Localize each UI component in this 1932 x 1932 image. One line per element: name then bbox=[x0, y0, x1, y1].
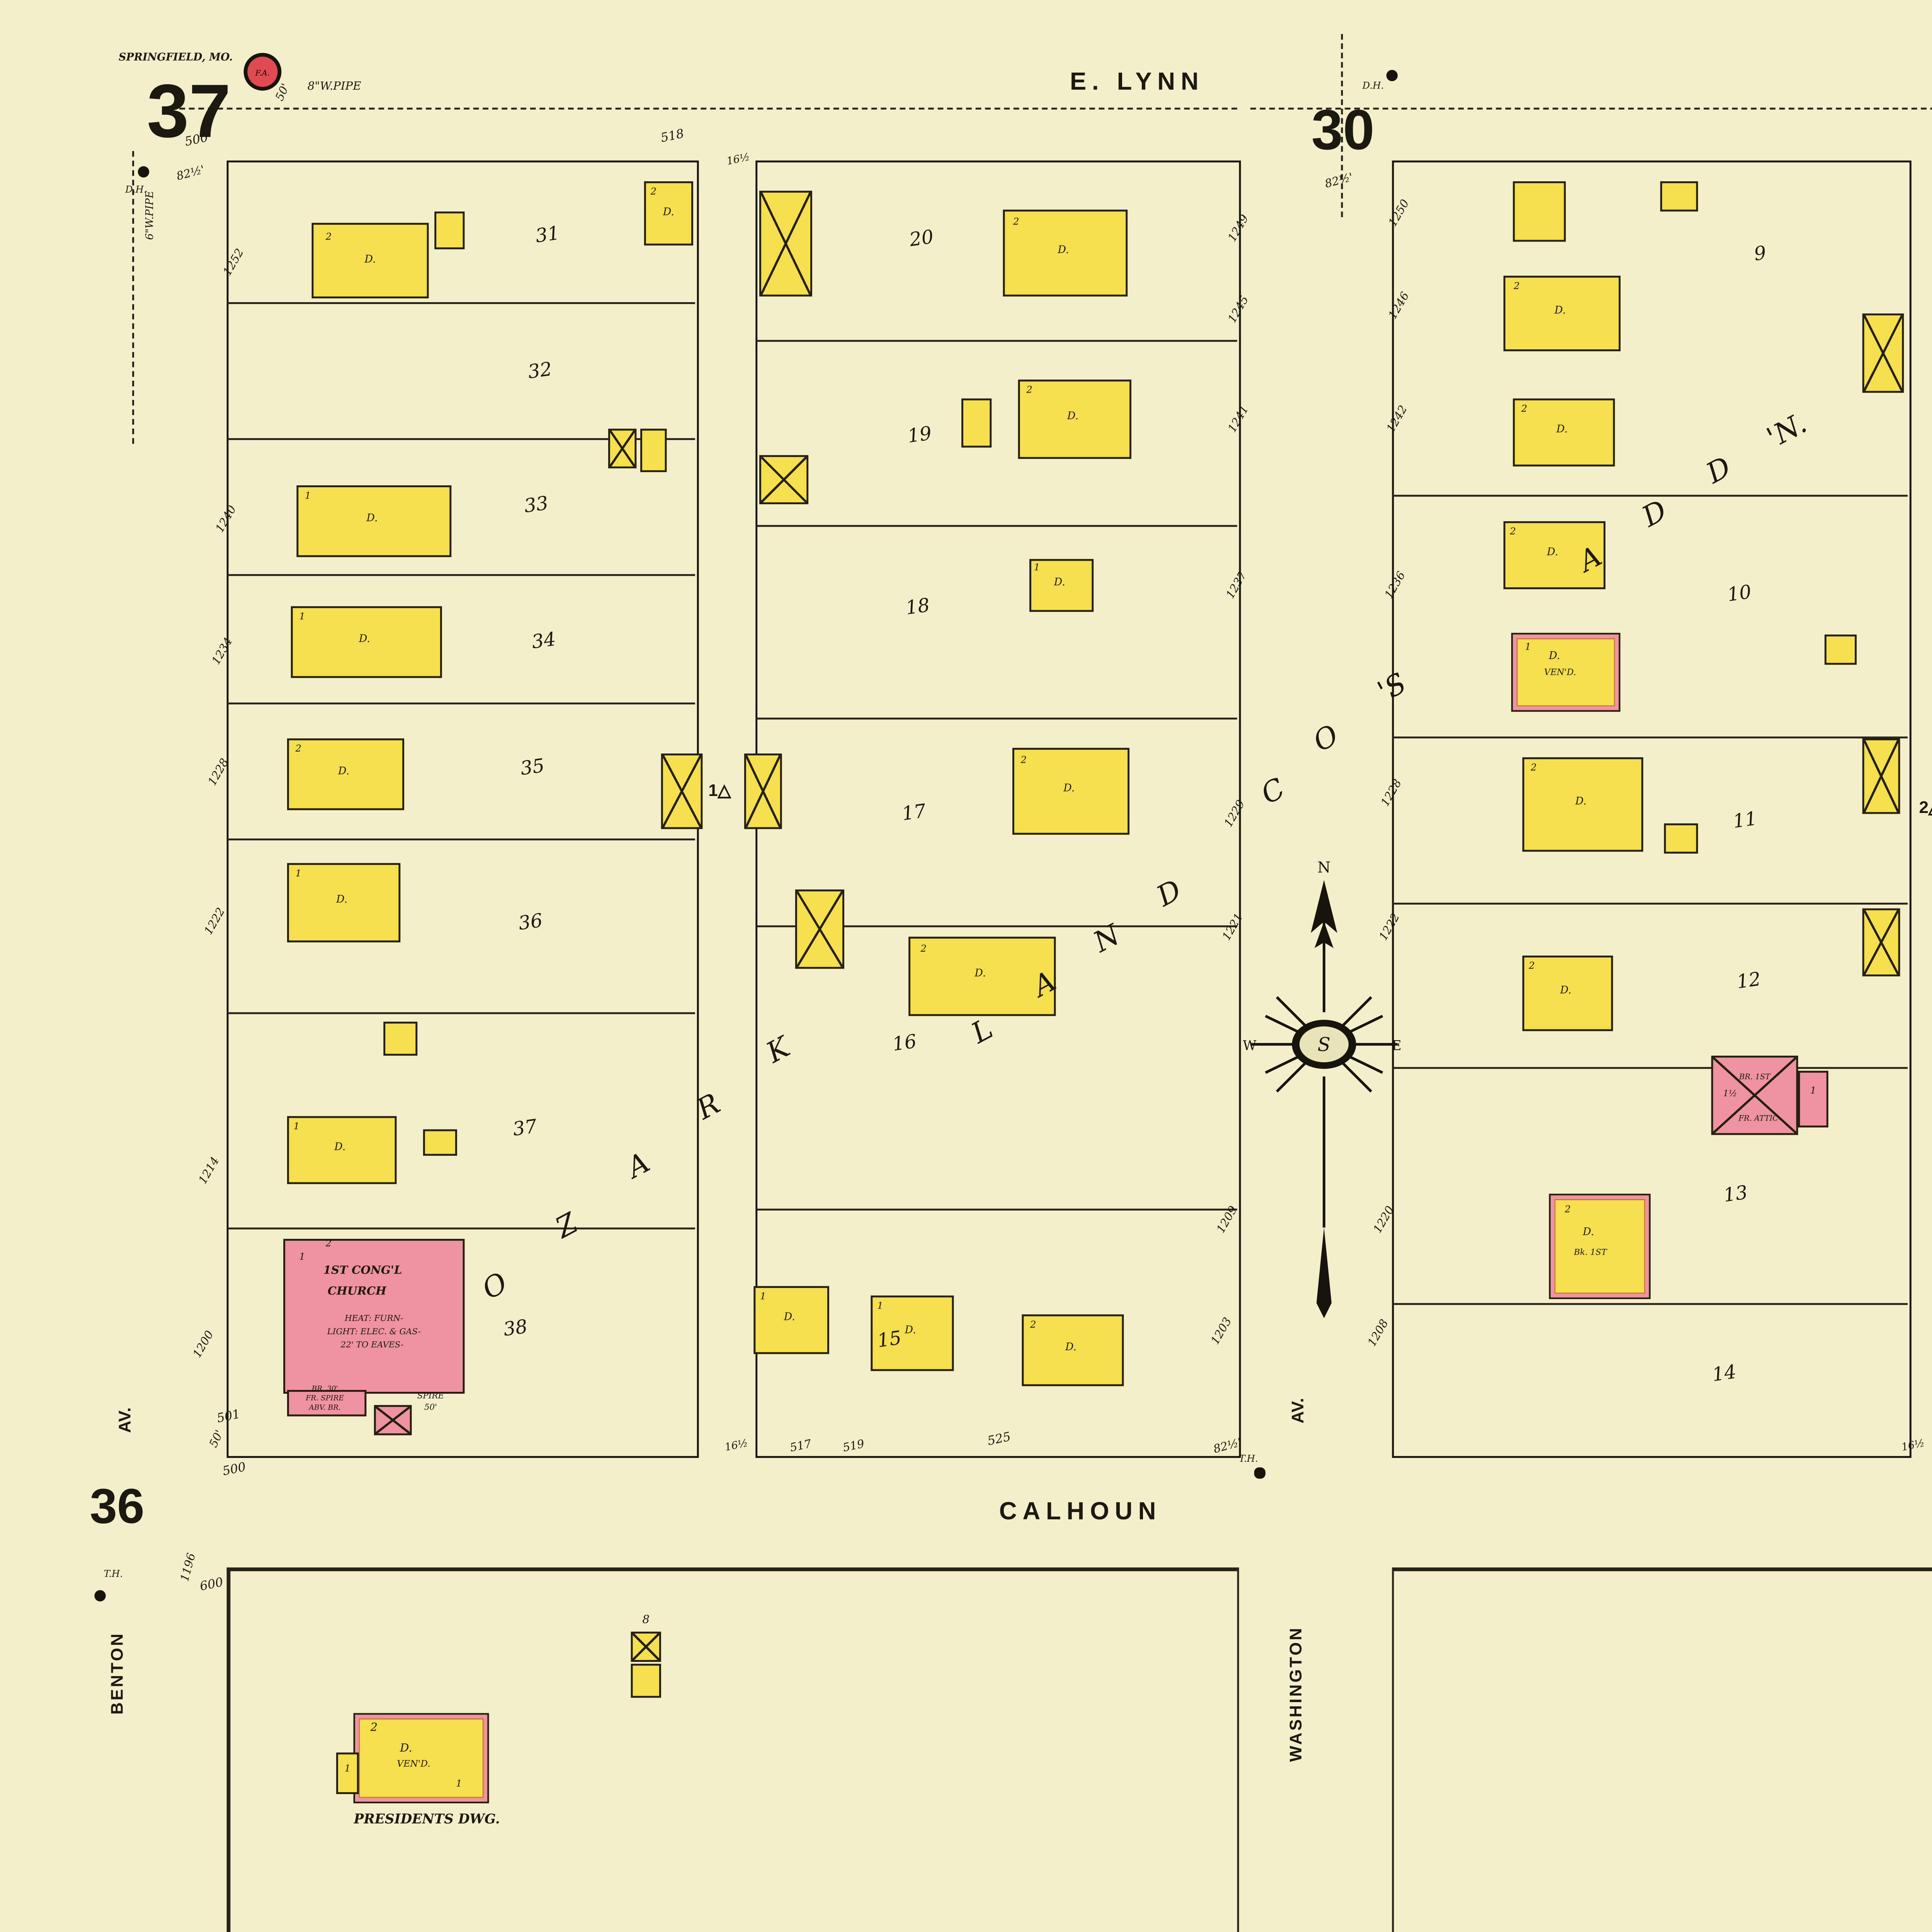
lot-line bbox=[1392, 1067, 1908, 1068]
lot-line bbox=[1237, 1568, 1240, 1932]
building-footprint bbox=[631, 1664, 661, 1698]
hn-1208: 1208 bbox=[1366, 1318, 1392, 1349]
width-50-left: 50' bbox=[207, 1428, 227, 1450]
church-spire: SPIRE bbox=[417, 1393, 444, 1402]
f-11: 1 bbox=[294, 1122, 300, 1133]
lot-18: 18 bbox=[905, 596, 931, 620]
f-25: 1 bbox=[877, 1301, 883, 1312]
th-left: T.H. bbox=[104, 1569, 123, 1580]
d-1: D. bbox=[364, 255, 376, 266]
lot-line bbox=[227, 1568, 230, 1932]
presidents-label: PRESIDENTS DWG. bbox=[354, 1810, 500, 1827]
building-footprint bbox=[1798, 1071, 1828, 1128]
street-washington: WASHINGTON bbox=[1286, 1626, 1305, 1762]
building-footprint bbox=[744, 753, 782, 829]
building-footprint bbox=[640, 429, 667, 472]
d-24: D. bbox=[784, 1313, 795, 1324]
pipe-elynn-west bbox=[179, 108, 1237, 110]
alley-16-top: 16½ bbox=[726, 153, 751, 168]
lot-35: 35 bbox=[519, 757, 546, 781]
church-name-1: 1ST CONG'L bbox=[323, 1264, 402, 1277]
th-dot-left bbox=[94, 1590, 106, 1602]
svg-text:W: W bbox=[1243, 1038, 1257, 1053]
d-23: D. bbox=[975, 969, 986, 980]
d-31: D. bbox=[1556, 425, 1568, 436]
church-heat-3: 22' TO EAVES- bbox=[341, 1342, 404, 1351]
hn-1214: 1214 bbox=[197, 1155, 223, 1187]
pres-1a: 1 bbox=[345, 1764, 351, 1775]
lot-14: 14 bbox=[1711, 1363, 1738, 1387]
compass-rose-icon: S N W E bbox=[1239, 850, 1409, 1322]
fire-alarm-box-icon: F.A. bbox=[244, 53, 282, 91]
d-35: D. bbox=[1575, 797, 1587, 808]
lot-line bbox=[755, 1209, 1237, 1210]
dh-top-left: D.H. bbox=[125, 185, 147, 196]
lot-32: 32 bbox=[527, 360, 553, 384]
church-heat-1: HEAT: FURN- bbox=[345, 1315, 403, 1325]
fire-alarm-label: F.A. bbox=[255, 67, 270, 77]
d-7: D. bbox=[359, 634, 370, 646]
marker-1a: 1△ bbox=[708, 781, 731, 802]
dh-dot-top-center bbox=[1386, 70, 1398, 82]
lot-20: 20 bbox=[908, 228, 935, 252]
d-11: D. bbox=[334, 1143, 345, 1154]
building-footprint bbox=[961, 398, 992, 447]
f-16: 2 bbox=[1026, 385, 1032, 396]
vend-label: VEN'D. bbox=[1544, 670, 1576, 679]
f-9: 1 bbox=[296, 869, 302, 880]
lot-12: 12 bbox=[1736, 970, 1762, 994]
d-6: D. bbox=[366, 514, 378, 525]
building-footprint bbox=[1513, 181, 1566, 241]
lot-31: 31 bbox=[534, 224, 561, 248]
f-8: 2 bbox=[296, 744, 302, 755]
building-footprint bbox=[1862, 908, 1900, 976]
width-82-top-left: 82½' bbox=[175, 164, 206, 184]
br1st-frattic: FR. ATTIC bbox=[1738, 1113, 1778, 1122]
pres-2: 2 bbox=[370, 1721, 378, 1735]
lot-17: 17 bbox=[901, 802, 927, 826]
br1st-label: BR. 1ST bbox=[1739, 1072, 1770, 1081]
lot-16: 16 bbox=[891, 1032, 918, 1056]
d-25: D. bbox=[905, 1326, 916, 1337]
svg-text:S: S bbox=[1318, 1034, 1330, 1056]
outbuilding-8: 8 bbox=[642, 1614, 650, 1627]
street-calhoun: CALHOUN bbox=[999, 1497, 1162, 1525]
lot-line bbox=[1392, 736, 1908, 738]
vend-d: D. bbox=[1549, 651, 1560, 663]
merriams-addition: M E R R I A M ' S S E C O N D A D D' N. bbox=[1928, 536, 1932, 1269]
building-footprint bbox=[1664, 823, 1698, 854]
d-39: D. bbox=[1560, 986, 1571, 997]
f-14: 2 bbox=[1013, 217, 1019, 228]
f-35: 2 bbox=[1531, 763, 1537, 774]
f-39: 2 bbox=[1529, 961, 1535, 973]
street-benton: BENTON bbox=[108, 1632, 127, 1714]
lot-line bbox=[755, 718, 1237, 719]
lot-13: 13 bbox=[1723, 1184, 1749, 1207]
lot-33: 33 bbox=[523, 494, 550, 518]
d-18: D. bbox=[1054, 578, 1065, 589]
pres-d: D. bbox=[400, 1742, 412, 1755]
f-32: 2 bbox=[1510, 527, 1516, 538]
d-9: D. bbox=[336, 895, 347, 906]
lot-line bbox=[755, 525, 1237, 527]
br1st-1h: 1½ bbox=[1723, 1090, 1737, 1100]
lot-line bbox=[1392, 1568, 1395, 1932]
sheet-30: 30 bbox=[1311, 100, 1374, 164]
pipe-label-elynn-west: 8"W.PIPE bbox=[308, 80, 361, 94]
f-21: 2 bbox=[1021, 755, 1027, 767]
f-3: 2 bbox=[650, 187, 656, 198]
lot-36: 36 bbox=[517, 912, 544, 935]
hn-1222: 1222 bbox=[202, 906, 228, 937]
f-18: 1 bbox=[1034, 563, 1040, 574]
street-washington-av: AV. bbox=[1288, 1398, 1307, 1423]
street-elynn: E. LYNN bbox=[1070, 67, 1204, 95]
building-footprint bbox=[759, 455, 808, 504]
lot-line bbox=[227, 574, 695, 576]
d-32: D. bbox=[1547, 548, 1558, 559]
church-heat-2: LIGHT: ELEC. & GAS- bbox=[327, 1328, 421, 1338]
pres-1b: 1 bbox=[456, 1779, 462, 1790]
lot-19: 19 bbox=[906, 424, 933, 448]
lot-34: 34 bbox=[531, 630, 557, 654]
hn-1200: 1200 bbox=[191, 1329, 217, 1361]
pres-vend: VEN'D. bbox=[397, 1761, 430, 1770]
bk1st-label: Bk. 1ST bbox=[1574, 1249, 1607, 1259]
d-14: D. bbox=[1058, 245, 1069, 257]
f-6: 1 bbox=[305, 491, 311, 502]
building-footprint bbox=[383, 1022, 417, 1056]
church-br30: BR. 30' bbox=[312, 1383, 338, 1393]
building-footprint bbox=[1825, 634, 1857, 665]
lot-line bbox=[1392, 903, 1908, 904]
f-23: 2 bbox=[920, 944, 927, 956]
d-29: D. bbox=[1554, 306, 1566, 317]
d-3: D. bbox=[663, 208, 674, 219]
block-3 bbox=[1392, 160, 1912, 1458]
church-spire-50: 50' bbox=[424, 1404, 437, 1413]
lot-line bbox=[227, 838, 695, 840]
svg-text:E: E bbox=[1392, 1038, 1401, 1053]
lot-line bbox=[227, 302, 695, 304]
dh-dot-top-left bbox=[138, 166, 150, 178]
building-footprint bbox=[631, 1632, 661, 1662]
lot-1196: 1196 bbox=[179, 1552, 199, 1583]
lot-15: 15 bbox=[876, 1329, 903, 1353]
dh-top-center: D.H. bbox=[1362, 81, 1384, 92]
vend-1: 1 bbox=[1525, 642, 1531, 653]
building-footprint bbox=[434, 211, 464, 249]
corner-518: 518 bbox=[659, 126, 685, 146]
building-footprint bbox=[423, 1129, 457, 1156]
lot-line bbox=[227, 1228, 695, 1229]
building-footprint bbox=[1660, 181, 1698, 211]
width-82-top: 82½' bbox=[1324, 171, 1355, 191]
marker-2a: 2△ bbox=[1919, 798, 1932, 819]
d-26: D. bbox=[1065, 1343, 1077, 1354]
lot-10: 10 bbox=[1726, 583, 1753, 607]
city-title: SPRINGFIELD, MO. bbox=[119, 53, 233, 64]
fa-50: 50' bbox=[274, 82, 293, 104]
lot-line bbox=[755, 340, 1237, 342]
pipe-label-benton-top: 6"W.PIPE bbox=[145, 190, 156, 240]
building-footprint bbox=[374, 1405, 412, 1435]
church-1: 1 bbox=[299, 1252, 305, 1263]
f-26: 2 bbox=[1030, 1320, 1036, 1331]
bk1st-2: 2 bbox=[1565, 1205, 1571, 1216]
church-frspire: FR. SPIRE bbox=[306, 1393, 344, 1402]
d-8: D. bbox=[338, 767, 349, 778]
th-dot-cal bbox=[1255, 1468, 1265, 1478]
block-2 bbox=[755, 160, 1241, 1458]
lot-line bbox=[227, 702, 695, 704]
lot-37: 37 bbox=[512, 1117, 538, 1141]
church-abvbr: ABV. BR. bbox=[309, 1402, 341, 1412]
lot-line bbox=[227, 1012, 695, 1014]
building-footprint bbox=[759, 191, 812, 297]
lot-line bbox=[1392, 1568, 1932, 1571]
lot-38: 38 bbox=[502, 1318, 529, 1342]
th-cal: T.H. bbox=[1239, 1454, 1258, 1465]
d-16: D. bbox=[1067, 412, 1078, 423]
corner-500-cal: 500 bbox=[221, 1459, 247, 1479]
lot-line bbox=[1392, 1303, 1908, 1304]
building-footprint bbox=[795, 889, 844, 969]
oz-C: C bbox=[1255, 771, 1291, 811]
street-benton-av: AV. bbox=[115, 1407, 134, 1433]
sanborn-map-sheet-37: SPRINGFIELD, MO.3750'8"W.PIPEE. LYNND.H.… bbox=[0, 0, 1932, 1932]
bk1st-d: D. bbox=[1583, 1228, 1594, 1239]
f-31: 2 bbox=[1521, 404, 1527, 415]
corner-600-campus: 600 bbox=[199, 1575, 225, 1594]
f-1: 2 bbox=[326, 232, 332, 243]
sheet-36: 36 bbox=[90, 1478, 144, 1536]
svg-text:N: N bbox=[1317, 859, 1330, 876]
building-footprint bbox=[661, 753, 703, 829]
f-7: 1 bbox=[299, 612, 305, 623]
f-24: 1 bbox=[760, 1292, 766, 1303]
lot-line bbox=[227, 1568, 1237, 1571]
br1st-1: 1 bbox=[1810, 1086, 1816, 1097]
building-footprint bbox=[1862, 738, 1900, 814]
lot-line bbox=[1392, 495, 1908, 496]
building-footprint bbox=[1862, 313, 1904, 393]
church-name-2: CHURCH bbox=[328, 1285, 386, 1298]
alley-16-cal-west: 16½ bbox=[724, 1439, 749, 1454]
lot-11: 11 bbox=[1732, 810, 1759, 833]
d-21: D. bbox=[1063, 784, 1075, 795]
f-29: 2 bbox=[1514, 281, 1520, 293]
scanned-map-page: SPRINGFIELD, MO.3750'8"W.PIPEE. LYNND.H.… bbox=[0, 0, 1932, 1932]
oz-O2: O bbox=[1308, 718, 1344, 759]
church-2: 2 bbox=[326, 1239, 332, 1250]
building-footprint bbox=[608, 429, 636, 468]
